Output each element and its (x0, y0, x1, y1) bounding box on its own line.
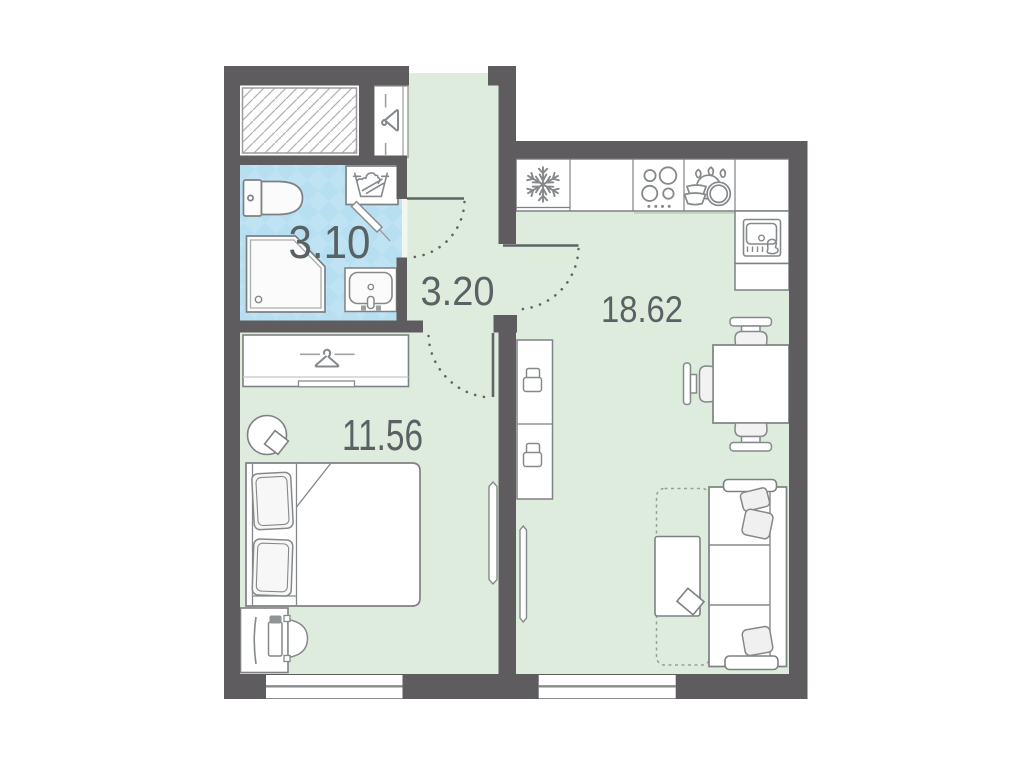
svg-text:18.62: 18.62 (601, 288, 683, 330)
svg-text:11.56: 11.56 (342, 412, 423, 460)
svg-text:3.20: 3.20 (421, 268, 495, 314)
svg-text:3.10: 3.10 (289, 216, 371, 268)
